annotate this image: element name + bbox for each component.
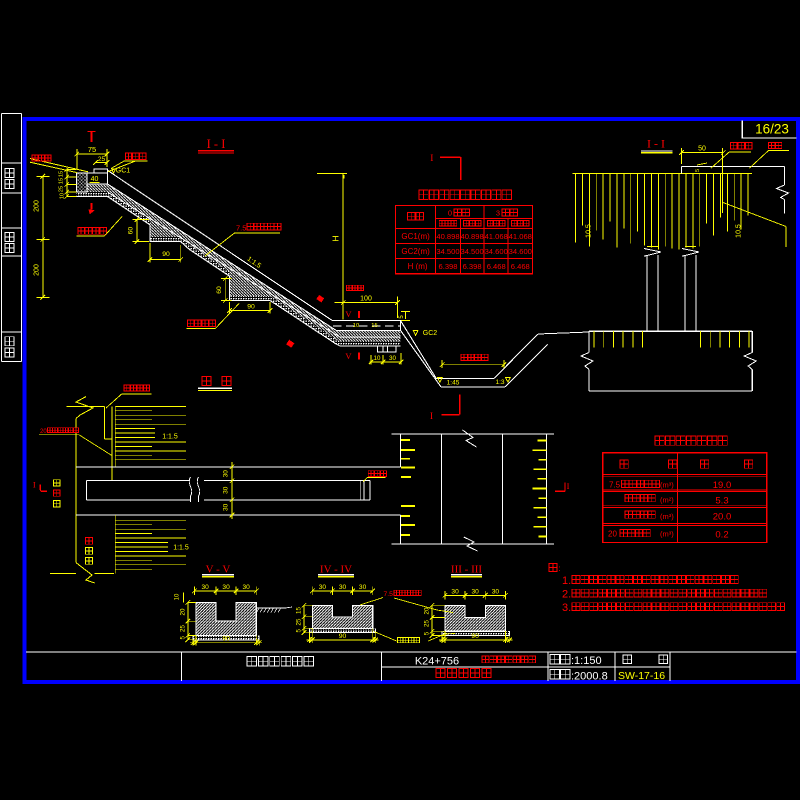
svg-text:I - I: I - I — [207, 137, 226, 151]
svg-text:30: 30 — [223, 503, 230, 511]
svg-text:30: 30 — [389, 355, 396, 362]
svg-text:41.068: 41.068 — [485, 232, 508, 241]
svg-text:7.5: 7.5 — [384, 591, 394, 598]
svg-text:I - I: I - I — [647, 137, 665, 151]
svg-text:GC2: GC2 — [423, 330, 438, 337]
svg-text:90: 90 — [247, 304, 255, 311]
svg-text:90: 90 — [222, 636, 230, 643]
svg-text:16/23: 16/23 — [755, 122, 789, 137]
svg-text:30: 30 — [319, 584, 327, 591]
svg-text:10: 10 — [353, 323, 359, 329]
svg-text:15: 15 — [59, 178, 65, 184]
svg-text::: : — [558, 564, 560, 573]
svg-text:2.: 2. — [562, 589, 571, 601]
svg-text:25: 25 — [59, 186, 65, 192]
svg-text:SW-17-16: SW-17-16 — [618, 670, 665, 682]
svg-text:90: 90 — [339, 633, 347, 640]
svg-text:20: 20 — [179, 608, 186, 615]
svg-text:5.3: 5.3 — [715, 496, 728, 507]
svg-text:30: 30 — [222, 584, 230, 591]
svg-text:GC1(m): GC1(m) — [401, 232, 430, 241]
svg-text:30: 30 — [359, 584, 367, 591]
svg-text:15: 15 — [371, 323, 377, 329]
svg-text:90: 90 — [162, 251, 170, 258]
svg-text:5: 5 — [296, 629, 303, 633]
svg-text:30: 30 — [451, 588, 459, 595]
svg-text:41.068: 41.068 — [509, 232, 532, 241]
svg-text:0: 0 — [448, 209, 452, 218]
svg-text:50: 50 — [698, 145, 706, 152]
svg-text:30: 30 — [339, 584, 347, 591]
svg-text:10.5: 10.5 — [586, 224, 593, 238]
svg-text:0.2: 0.2 — [715, 530, 728, 541]
svg-text:25: 25 — [98, 156, 106, 163]
svg-text:(m³): (m³) — [660, 530, 674, 539]
svg-text:3: 3 — [496, 209, 500, 218]
svg-text:34.600: 34.600 — [485, 247, 508, 256]
svg-text:25: 25 — [424, 620, 431, 627]
svg-text:I: I — [33, 480, 36, 490]
svg-text::2000.8: :2000.8 — [571, 671, 608, 683]
svg-text:(m³): (m³) — [660, 481, 674, 490]
svg-text:10: 10 — [175, 593, 181, 600]
svg-text:H (m): H (m) — [408, 262, 428, 271]
svg-text:7.5: 7.5 — [236, 223, 246, 232]
svg-text:100: 100 — [360, 296, 372, 303]
svg-text:90: 90 — [471, 633, 479, 640]
svg-text:V: V — [345, 351, 352, 361]
svg-text:(m²): (m²) — [660, 496, 674, 505]
svg-text:30: 30 — [492, 588, 500, 595]
svg-text:GC2(m): GC2(m) — [401, 247, 430, 256]
svg-text:V: V — [345, 309, 352, 319]
svg-text:3.: 3. — [562, 602, 571, 614]
svg-text:6.468: 6.468 — [511, 262, 530, 271]
svg-text:I: I — [430, 154, 433, 164]
svg-text:60: 60 — [128, 227, 135, 235]
svg-text:25: 25 — [296, 618, 303, 625]
svg-text:20: 20 — [40, 429, 47, 435]
svg-text:30: 30 — [472, 588, 480, 595]
svg-text:1:45: 1:45 — [447, 380, 460, 387]
svg-text:19.0: 19.0 — [713, 480, 732, 491]
svg-text:I: I — [567, 481, 570, 491]
svg-text:40.898: 40.898 — [460, 232, 483, 241]
svg-text:10.5: 10.5 — [736, 224, 743, 238]
svg-text:34.500: 34.500 — [436, 247, 459, 256]
svg-text:H: H — [331, 235, 341, 241]
svg-text:30: 30 — [223, 470, 230, 478]
svg-text:34.500: 34.500 — [460, 247, 483, 256]
svg-text:V - V: V - V — [206, 564, 231, 576]
svg-text::1:150: :1:150 — [571, 655, 602, 667]
svg-text:30: 30 — [202, 584, 210, 591]
svg-text:15: 15 — [59, 171, 65, 177]
svg-text:1:1.5: 1:1.5 — [173, 545, 189, 552]
svg-text:5: 5 — [179, 636, 186, 640]
svg-text:10: 10 — [374, 355, 381, 362]
svg-text:1.: 1. — [562, 575, 571, 587]
svg-text:40.898: 40.898 — [436, 232, 459, 241]
svg-text:40: 40 — [91, 176, 99, 183]
svg-text:25: 25 — [179, 625, 186, 632]
svg-text:20: 20 — [608, 530, 617, 539]
svg-text:30: 30 — [223, 486, 230, 494]
svg-text:20.0: 20.0 — [713, 512, 732, 523]
svg-text:(m³): (m³) — [660, 512, 674, 521]
svg-text:6.398: 6.398 — [463, 262, 482, 271]
svg-text:1:1.5: 1:1.5 — [162, 434, 178, 441]
svg-text:15: 15 — [296, 607, 303, 614]
svg-text:1:3: 1:3 — [495, 379, 504, 386]
svg-text:III - III: III - III — [451, 564, 482, 576]
svg-text:30: 30 — [243, 584, 251, 591]
svg-text:6.468: 6.468 — [487, 262, 506, 271]
svg-text:60: 60 — [216, 286, 223, 294]
svg-text:10: 10 — [60, 193, 66, 199]
svg-text:5: 5 — [695, 169, 701, 172]
svg-text:75: 75 — [88, 145, 96, 154]
svg-text:I: I — [430, 412, 433, 422]
svg-text:5: 5 — [424, 631, 431, 635]
svg-text:7.5: 7.5 — [609, 481, 621, 490]
svg-text:200: 200 — [34, 264, 41, 276]
svg-text:6.398: 6.398 — [438, 262, 457, 271]
svg-text:34.600: 34.600 — [509, 247, 532, 256]
svg-text:GC1: GC1 — [116, 168, 131, 175]
svg-text:200: 200 — [34, 200, 41, 212]
svg-text:K24+756: K24+756 — [415, 656, 459, 668]
svg-text:IV - IV: IV - IV — [320, 564, 352, 576]
